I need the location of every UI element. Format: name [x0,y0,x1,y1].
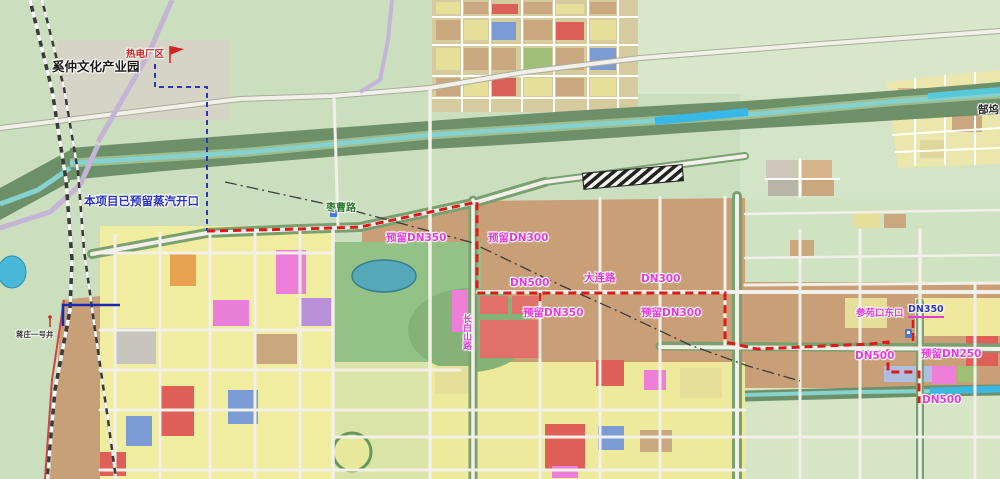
label-zaocao-road: 枣曹路 [326,204,356,214]
hamlet-mid-right [765,158,840,198]
label-plant-area: 热电厂区 [126,50,164,60]
label-reserved-dn250: 预留DN250 [921,349,981,360]
label-dn500-2: DN500 [855,351,894,362]
label-reserved-dn300-1: 预留DN300 [488,233,548,244]
planning-map: 奚仲文化产业园热电厂区本项目已预留蒸汽开口枣曹路预留DN350预留DN300DN… [0,0,1000,479]
label-dn350-branch: DN350 [908,305,944,318]
park-lake [352,260,416,292]
label-mine-well: 蒋庄一号井 [16,331,54,339]
small-lake [0,256,26,288]
label-dn500-1: DN500 [510,278,549,289]
label-changbaishan-road: 长白山路 [461,314,470,350]
label-reserved-dn350-1: 预留DN350 [386,233,446,244]
label-dn300: DN300 [641,274,680,285]
label-gaowu-village: 郜坞 [978,105,999,116]
label-steam-opening: 本项目已预留蒸汽开口 [84,196,199,208]
village-top-center [432,0,638,112]
label-industry-park: 奚仲文化产业园 [52,61,140,74]
label-dn500-3: DN500 [922,395,961,406]
label-reserved-dn350-2: 预留DN350 [523,308,583,319]
label-dalian-road: 大连路 [584,273,616,284]
label-canyuankou: 参苑口东口 [856,309,904,319]
marker-icon-east [905,329,912,338]
round-park [333,433,371,471]
label-reserved-dn300-2: 预留DN300 [641,308,701,319]
